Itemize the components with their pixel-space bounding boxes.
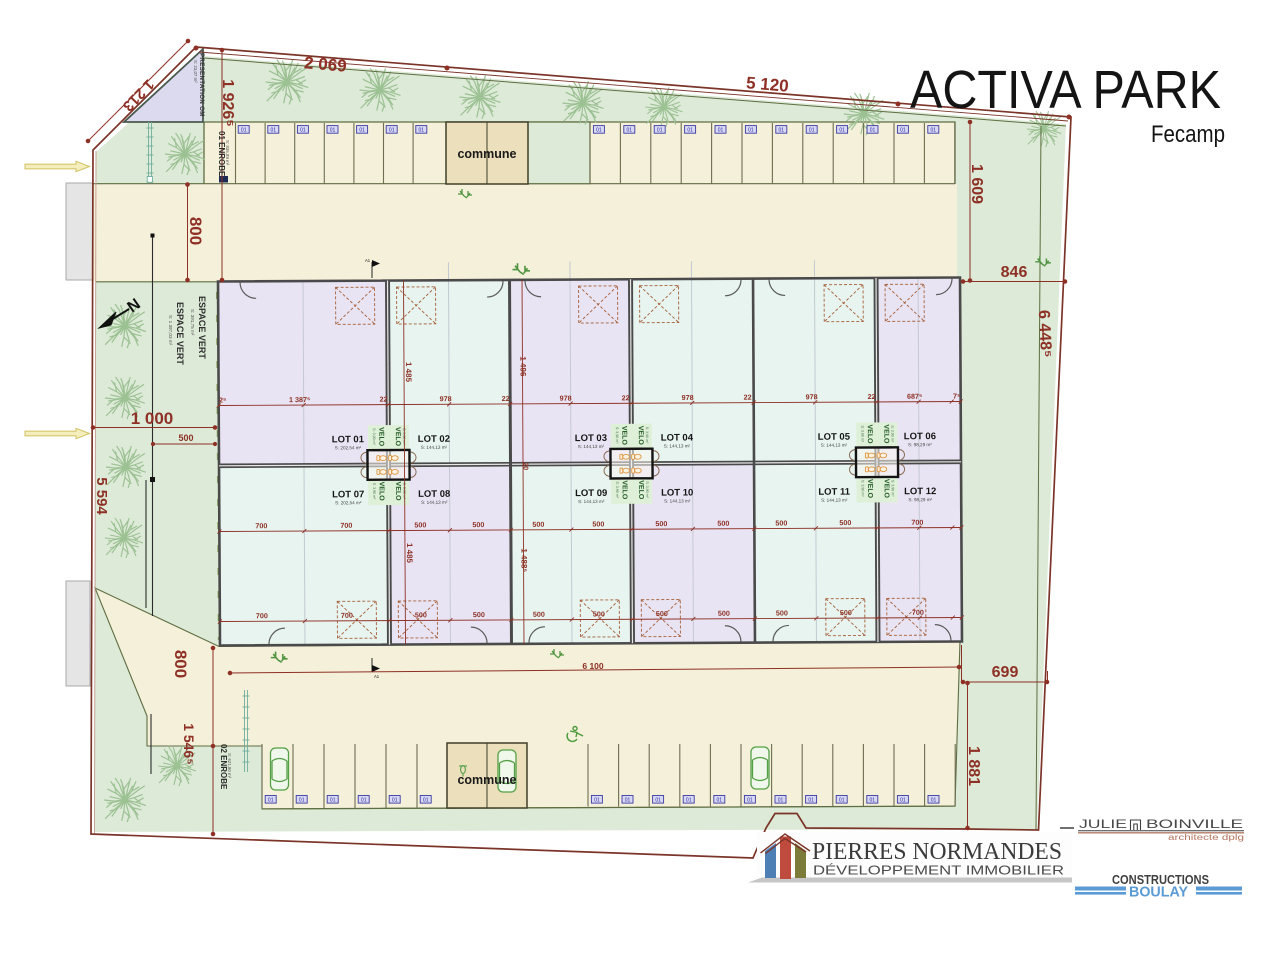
- svg-text:2 069: 2 069: [303, 53, 347, 75]
- svg-text:699: 699: [992, 664, 1019, 681]
- svg-text:S: 144,13 m²: S: 144,13 m²: [664, 498, 691, 503]
- svg-text:5 120: 5 120: [745, 73, 789, 95]
- svg-text:1 609: 1 609: [968, 164, 985, 204]
- svg-text:700: 700: [255, 521, 267, 530]
- svg-text:500: 500: [533, 610, 545, 619]
- svg-text:S: 3,90 m²: S: 3,90 m²: [890, 425, 894, 442]
- svg-text:S: 3,90 m²: S: 3,90 m²: [645, 427, 649, 444]
- svg-text:846: 846: [1001, 264, 1028, 281]
- svg-text:S: 3,90 m²: S: 3,90 m²: [615, 481, 619, 498]
- svg-text:PIERRES NORMANDES: PIERRES NORMANDES: [812, 839, 1062, 865]
- svg-text:S: 144,13 m²: S: 144,13 m²: [578, 444, 605, 449]
- svg-text:LOT 03: LOT 03: [575, 433, 607, 444]
- svg-text:S: 3,90 m²: S: 3,90 m²: [860, 426, 864, 443]
- svg-text:01 ENROBE: 01 ENROBE: [217, 131, 226, 177]
- svg-text:500: 500: [532, 520, 544, 529]
- svg-text:LOT 02: LOT 02: [418, 434, 450, 445]
- svg-text:S: 391,75 m²: S: 391,75 m²: [190, 309, 195, 336]
- svg-text:architecte dplg: architecte dplg: [1168, 833, 1244, 842]
- svg-text:VELO: VELO: [866, 479, 873, 499]
- svg-text:700: 700: [911, 518, 923, 527]
- svg-text:500: 500: [718, 609, 730, 618]
- svg-text:S: 144,13 m²: S: 144,13 m²: [578, 499, 605, 504]
- svg-text:LOT 11: LOT 11: [818, 487, 850, 498]
- svg-text:VELO: VELO: [394, 427, 401, 447]
- svg-text:500: 500: [414, 520, 426, 529]
- svg-text:BOINVILLE: BOINVILLE: [1146, 819, 1244, 831]
- svg-text:500: 500: [178, 433, 193, 443]
- svg-text:LOT 08: LOT 08: [418, 489, 450, 500]
- svg-text:S: 3,90 m²: S: 3,90 m²: [891, 480, 895, 497]
- svg-text:1 485: 1 485: [404, 362, 413, 383]
- svg-text:JULIE: JULIE: [1079, 819, 1127, 831]
- svg-text:S: 98,29 m²: S: 98,29 m²: [908, 442, 932, 447]
- svg-text:S: 144,13 m²: S: 144,13 m²: [421, 500, 448, 505]
- svg-text:S: 3,90 m²: S: 3,90 m²: [372, 483, 376, 500]
- svg-text:VELO: VELO: [377, 427, 384, 447]
- svg-text:1 000: 1 000: [131, 409, 174, 428]
- svg-text:700: 700: [912, 608, 924, 617]
- svg-text:7⁵: 7⁵: [953, 391, 960, 400]
- svg-text:22: 22: [622, 393, 630, 402]
- svg-text:500: 500: [415, 610, 427, 619]
- svg-text:Fecamp: Fecamp: [1151, 121, 1225, 148]
- svg-text:1 546⁵: 1 546⁵: [181, 723, 197, 765]
- svg-text:02 ENROBE: 02 ENROBE: [219, 744, 228, 790]
- svg-text:VELO: VELO: [637, 426, 644, 446]
- svg-text:S: 144,13 m²: S: 144,13 m²: [821, 443, 848, 448]
- svg-text:2⁵: 2⁵: [219, 395, 226, 404]
- svg-text:500: 500: [775, 518, 787, 527]
- svg-text:ESPACE VERT: ESPACE VERT: [197, 296, 207, 359]
- svg-text:700: 700: [256, 611, 268, 620]
- svg-text:S: 621,80 m²: S: 621,80 m²: [227, 753, 232, 779]
- svg-text:VELO: VELO: [883, 479, 890, 499]
- svg-text:A1: A1: [374, 674, 380, 679]
- svg-text:S: 144,13 m²: S: 144,13 m²: [664, 443, 691, 448]
- svg-text:800: 800: [186, 217, 205, 245]
- svg-text:S: 3,90 m²: S: 3,90 m²: [645, 481, 649, 498]
- svg-text:S: 202,54 m²: S: 202,54 m²: [335, 500, 362, 505]
- svg-text:LOT 07: LOT 07: [332, 489, 364, 500]
- svg-text:PRESENTATION OM: PRESENTATION OM: [198, 53, 205, 117]
- svg-text:VELO: VELO: [378, 482, 385, 502]
- svg-text:1 926⁵: 1 926⁵: [219, 79, 236, 127]
- svg-text:S: 3,90 m²: S: 3,90 m²: [402, 482, 406, 499]
- svg-text:500: 500: [776, 608, 788, 617]
- svg-text:S: 3,90 m²: S: 3,90 m²: [861, 480, 865, 497]
- svg-text:S: 202,54 m²: S: 202,54 m²: [335, 445, 362, 450]
- svg-text:ESPACE VERT: ESPACE VERT: [175, 302, 185, 365]
- svg-text:20: 20: [522, 462, 529, 470]
- svg-text:1 387⁵: 1 387⁵: [289, 395, 310, 404]
- svg-text:S: 836,89 m²: S: 836,89 m²: [225, 140, 230, 166]
- svg-text:DÉVELOPPEMENT IMMOBILIER: DÉVELOPPEMENT IMMOBILIER: [813, 863, 1064, 878]
- svg-text:978: 978: [682, 393, 694, 402]
- svg-text:LOT 05: LOT 05: [818, 432, 851, 443]
- svg-text:978: 978: [806, 392, 818, 401]
- svg-text:500: 500: [472, 520, 484, 529]
- svg-text:500: 500: [592, 519, 604, 528]
- svg-text:978: 978: [440, 394, 452, 403]
- svg-text:1 485: 1 485: [405, 543, 414, 564]
- svg-text:22: 22: [502, 394, 510, 403]
- svg-text:BOULAY: BOULAY: [1129, 884, 1188, 901]
- svg-text:LOT 12: LOT 12: [904, 486, 936, 497]
- svg-text:LOT 10: LOT 10: [661, 487, 693, 498]
- svg-text:6 448⁵: 6 448⁵: [1035, 310, 1054, 358]
- svg-text:500: 500: [655, 519, 667, 528]
- svg-text:VELO: VELO: [620, 426, 627, 446]
- svg-text:500: 500: [473, 610, 485, 619]
- svg-text:S: 3,90 m²: S: 3,90 m²: [615, 427, 619, 444]
- svg-text:S: 3,90 m²: S: 3,90 m²: [372, 428, 376, 445]
- svg-text:LOT 04: LOT 04: [661, 432, 694, 443]
- svg-text:800: 800: [171, 650, 190, 678]
- svg-text:A1: A1: [365, 258, 371, 263]
- svg-text:500: 500: [839, 518, 851, 527]
- svg-text:500: 500: [593, 609, 605, 618]
- svg-text:commune: commune: [457, 147, 516, 161]
- svg-text:500: 500: [840, 608, 852, 617]
- svg-text:VELO: VELO: [394, 482, 401, 502]
- svg-text:S: 1 397,03 m²: S: 1 397,03 m²: [168, 315, 173, 346]
- svg-text:VELO: VELO: [882, 424, 889, 444]
- svg-text:22: 22: [380, 395, 388, 404]
- svg-text:VELO: VELO: [866, 424, 873, 444]
- svg-text:VELO: VELO: [621, 480, 628, 500]
- svg-text:LOT 09: LOT 09: [575, 488, 607, 499]
- svg-text:1 488⁵: 1 488⁵: [519, 548, 528, 572]
- svg-text:500: 500: [656, 609, 668, 618]
- svg-text:VELO: VELO: [637, 480, 644, 500]
- svg-text:22: 22: [868, 392, 876, 401]
- svg-text:S: 144,13 m²: S: 144,13 m²: [421, 445, 448, 450]
- svg-text:700: 700: [340, 521, 352, 530]
- svg-text:1 496: 1 496: [518, 356, 527, 377]
- svg-text:ACTIVA PARK: ACTIVA PARK: [910, 60, 1221, 120]
- svg-text:6 100: 6 100: [582, 661, 604, 671]
- svg-text:LOT 01: LOT 01: [332, 434, 365, 445]
- svg-text:commune: commune: [457, 773, 516, 787]
- svg-text:978: 978: [560, 394, 572, 403]
- svg-text:700: 700: [341, 611, 353, 620]
- svg-text:687⁵: 687⁵: [907, 392, 922, 401]
- svg-text:500: 500: [717, 519, 729, 528]
- svg-text:1 881: 1 881: [965, 746, 982, 786]
- svg-text:S: 144,13 m²: S: 144,13 m²: [821, 498, 848, 503]
- svg-text:22: 22: [744, 393, 752, 402]
- svg-text:LOT 06: LOT 06: [904, 431, 936, 442]
- svg-text:S: 98,29 m²: S: 98,29 m²: [908, 497, 932, 502]
- svg-text:5 594: 5 594: [93, 477, 110, 515]
- svg-text:S: 23,07 m²: S: 23,07 m²: [193, 60, 198, 83]
- svg-text:S: 3,90 m²: S: 3,90 m²: [402, 428, 406, 445]
